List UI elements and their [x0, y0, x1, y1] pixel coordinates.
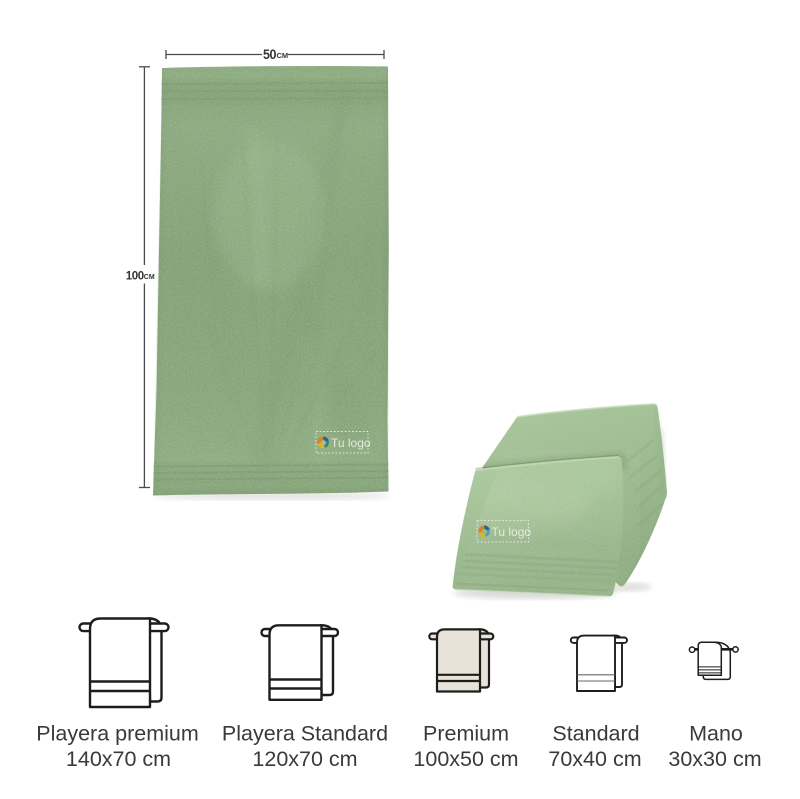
svg-text:Playera premium: Playera premium	[36, 722, 199, 746]
svg-text:Standard: Standard	[552, 722, 639, 746]
svg-text:Mano: Mano	[689, 722, 743, 746]
svg-text:70x40 cm: 70x40 cm	[548, 747, 641, 771]
svg-text:100: 100	[126, 271, 144, 283]
svg-text:Tu logo: Tu logo	[331, 436, 371, 450]
svg-text:30x30 cm: 30x30 cm	[668, 747, 761, 771]
svg-text:50: 50	[263, 47, 276, 63]
svg-text:Tu logo: Tu logo	[492, 525, 532, 539]
svg-text:120x70 cm: 120x70 cm	[252, 747, 357, 771]
svg-text:Playera Standard: Playera Standard	[222, 722, 388, 746]
svg-text:140x70 cm: 140x70 cm	[66, 747, 171, 771]
svg-text:CM: CM	[144, 274, 155, 281]
svg-text:100x50 cm: 100x50 cm	[413, 747, 518, 771]
svg-text:Premium: Premium	[423, 722, 509, 746]
svg-text:CM: CM	[277, 51, 289, 60]
